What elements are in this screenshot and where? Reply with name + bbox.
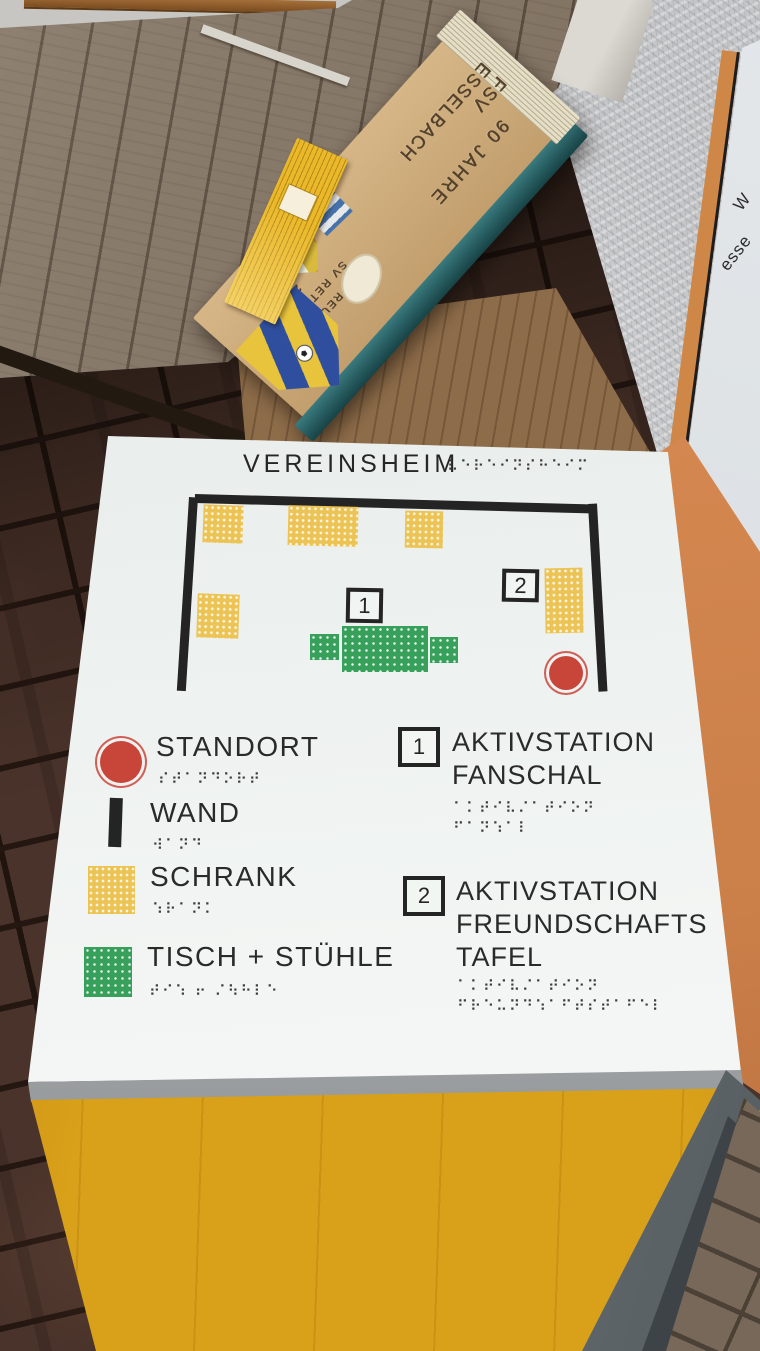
legend-schrank-braille: ⠱⠗⠁⠝⠅ bbox=[152, 900, 217, 918]
legend-tisch-icon bbox=[84, 947, 132, 997]
station-2-line2: FREUNDSCHAFTS bbox=[456, 909, 708, 940]
station-2-line3: TAFEL bbox=[456, 942, 543, 973]
sign-title: VEREINSHEIM bbox=[243, 450, 459, 479]
plan-schrank bbox=[287, 505, 358, 547]
legend-standort-label: STANDORT bbox=[156, 731, 319, 763]
station-1-braille-line2: ⠋⠁⠝⠱⠁⠇ bbox=[453, 819, 531, 837]
plan-schrank bbox=[405, 511, 444, 549]
legend-schrank-icon bbox=[88, 866, 135, 914]
legend-station-2-number: 2 bbox=[418, 883, 430, 909]
legend-station-1-icon: 1 bbox=[398, 727, 440, 767]
plan-stuhl bbox=[310, 634, 339, 660]
plan-standort-dot bbox=[549, 656, 583, 690]
photo-scene: W esse 90 JAHRE FSV ESSELBACH IN FREUNDS… bbox=[0, 0, 760, 1351]
plan-schrank bbox=[196, 593, 240, 638]
soccer-ball-icon bbox=[293, 341, 317, 365]
station-2-line1: AKTIVSTATION bbox=[456, 876, 659, 907]
station-2-braille-line1: ⠁⠅⠞⠊⠧⠌⠁⠞⠊⠕⠝ bbox=[457, 977, 600, 995]
plan-tisch bbox=[342, 626, 428, 672]
legend-wand-braille: ⠺⠁⠝⠙ bbox=[152, 836, 204, 854]
legend-standort-icon bbox=[100, 741, 142, 783]
station-1-line2: FANSCHAL bbox=[452, 760, 603, 791]
legend-standort-braille: ⠎⠞⠁⠝⠙⠕⠗⠞ bbox=[158, 770, 262, 788]
legend-tisch-braille: ⠞⠊⠱ ⠖ ⠌⠳⠓⠇⠑ bbox=[149, 982, 279, 1000]
plan-station-2-marker: 2 bbox=[502, 569, 540, 603]
station-1-line1: AKTIVSTATION bbox=[452, 727, 655, 758]
plan-schrank bbox=[202, 504, 243, 543]
legend-wand-icon bbox=[108, 798, 123, 847]
legend-station-2-icon: 2 bbox=[403, 876, 445, 916]
legend-tisch-label: TISCH + STÜHLE bbox=[147, 941, 394, 973]
plan-stuhl bbox=[430, 637, 458, 663]
station-1-braille-line1: ⠁⠅⠞⠊⠧⠌⠁⠞⠊⠕⠝ bbox=[453, 799, 596, 817]
plan-schrank bbox=[544, 568, 583, 634]
legend-schrank-label: SCHRANK bbox=[150, 861, 297, 893]
legend-wand-label: WAND bbox=[150, 797, 241, 829]
plan-station-1-number: 1 bbox=[358, 592, 371, 618]
sign-title-braille: ⠧⠑⠗⠑⠊⠝⠎⠓⠑⠊⠍ bbox=[447, 457, 590, 475]
book-wooden-cover: 90 JAHRE FSV ESSELBACH IN FREUNDSCHAFT S… bbox=[193, 27, 567, 419]
station-2-braille-line2: ⠋⠗⠑⠥⠝⠙⠱⠁⠋⠞⠎⠞⠁⠋⠑⠇ bbox=[457, 997, 665, 1015]
plan-station-2-number: 2 bbox=[514, 572, 527, 598]
plan-station-1-marker: 1 bbox=[346, 588, 384, 624]
legend-station-1-number: 1 bbox=[413, 734, 425, 760]
